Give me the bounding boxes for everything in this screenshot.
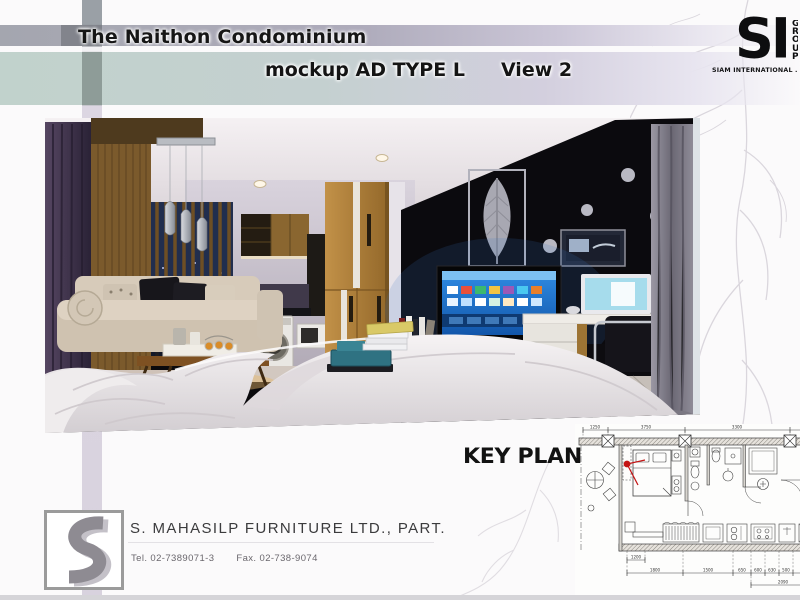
si-logo-side-letters: GROUP [792, 20, 798, 61]
page-title: The Naithon Condominium [78, 26, 366, 48]
dim-bot-4: 600 [754, 568, 762, 573]
page-subtitle: mockup AD TYPE LView 2 [265, 59, 572, 81]
company-divider [128, 542, 434, 543]
fax-label: Fax. 02-738-9074 [236, 553, 317, 564]
si-logo-tagline: SIAM INTERNATIONAL .CO L [712, 67, 797, 74]
company-name: S. MAHASILP FURNITURE LTD., PART. [130, 520, 446, 537]
tel-label: Tel. 02-7389071-3 [131, 553, 214, 564]
dim-top-1: 1250 [590, 425, 601, 430]
view-label: View 2 [501, 59, 572, 81]
si-logo-mark: SI [735, 14, 788, 65]
dim-bot-1: 1800 [650, 568, 661, 573]
dim-top-2: 3750 [641, 425, 652, 430]
dim-1200: 1200 [631, 555, 642, 560]
dim-bot-5: 630 [768, 568, 776, 573]
dim-bot-6: 500 [782, 568, 790, 573]
dim-bot-2: 1500 [703, 568, 714, 573]
dim-total: 2090 [778, 580, 789, 585]
tree-watermark-lower [430, 460, 580, 600]
interior-rendering [45, 118, 700, 433]
contact-line: Tel. 02-7389071-3Fax. 02-738-9074 [131, 553, 318, 564]
mahasilp-logo [44, 510, 124, 590]
dim-bot-3: 650 [738, 568, 746, 573]
key-plan-label: KEY PLAN [463, 444, 582, 468]
scan-edge [0, 595, 800, 600]
mockup-label: mockup AD TYPE L [265, 59, 465, 81]
dim-top-3: 3300 [732, 425, 743, 430]
key-plan-drawing: 1250 3750 3300 1200 1800 1500 650 600 63… [575, 424, 800, 600]
siam-international-logo: SI GROUP SIAM INTERNATIONAL .CO L [712, 14, 798, 84]
